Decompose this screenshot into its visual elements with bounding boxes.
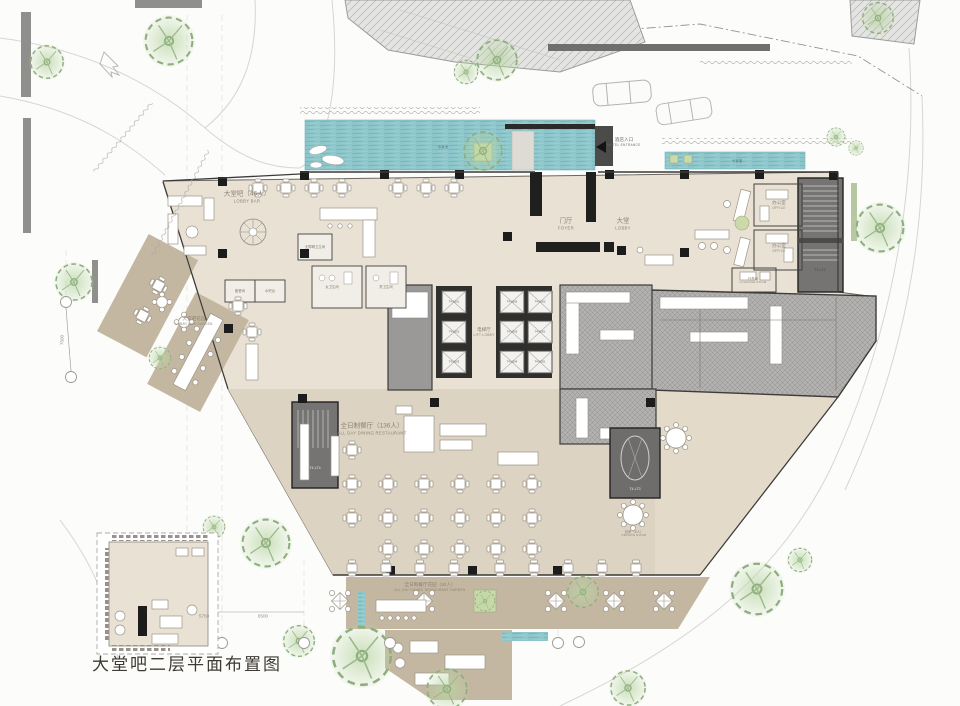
room-label-lobby: 大堂 LOBBY bbox=[615, 217, 630, 230]
lift-label-ld05: T4-LD05 bbox=[507, 330, 517, 333]
room-label-office-1: 办公室 OFFICE bbox=[772, 200, 786, 210]
deck-water-strip bbox=[358, 592, 366, 626]
site-label-hotel-entrance: 酒店入口 HOTEL ENTRANCE bbox=[607, 137, 640, 147]
lift-label-kd02: T4-KD02 bbox=[535, 300, 546, 303]
room-label-foyer: 门厅 FOYER bbox=[558, 217, 574, 230]
dimension-8500: 8500 bbox=[258, 614, 268, 619]
stair-label-t4-lt3: T4-LT3 bbox=[629, 487, 640, 491]
room-label-restaurant: 全日制餐厅（136人） ALL DAY DINING RESTAURANT bbox=[337, 422, 406, 435]
lift-label-kd01: T4-KD01 bbox=[535, 330, 546, 333]
drawing-title: 大堂吧二层平面布置图 bbox=[92, 650, 282, 675]
reflecting-pool bbox=[305, 120, 595, 170]
room-label-lift-lobby: 电梯厅 LIFT LOBBY bbox=[473, 327, 494, 337]
lift-label-ld01: T4-LD01 bbox=[449, 300, 459, 303]
site-label-water-wall: 水景墙 bbox=[732, 159, 742, 163]
lift-label-ld02: T4-LD02 bbox=[449, 330, 459, 333]
room-label-water-bar: 水吧台 bbox=[265, 289, 275, 293]
lift-label-ld04: T4-LD04 bbox=[507, 360, 517, 363]
inset-detail bbox=[97, 533, 218, 654]
stair-label-t4-lt2: T4-LT2 bbox=[814, 268, 825, 272]
room-label-lobby-bar: 大堂吧（46人） LOBBY BAR bbox=[224, 190, 270, 203]
room-label-lobby-bar-garden: 大堂吧花园 LOBBY BAR GARDEN bbox=[175, 316, 212, 326]
room-label-male-toilet: 男卫生间 bbox=[379, 285, 393, 289]
spiral-stair bbox=[240, 219, 266, 245]
room-label-office-2: 办公室 OFFICE bbox=[772, 243, 786, 253]
deck-water-strip2 bbox=[502, 632, 548, 641]
site-label-water-pool: 水景池 bbox=[438, 145, 448, 149]
plan-drawing bbox=[0, 0, 960, 706]
dimension-5750: 5750 bbox=[199, 614, 209, 619]
room-label-pantry: 备餐间 bbox=[235, 289, 245, 293]
car-icon bbox=[592, 80, 713, 126]
room-label-luggage: 行李间 LUGGAGE ROOM bbox=[740, 277, 767, 285]
stair-t4-lt2 bbox=[798, 178, 843, 292]
lift-label-ld03: T4-LD03 bbox=[449, 360, 459, 363]
room-label-female-toilet: 女卫生间 bbox=[325, 285, 339, 289]
room-label-restaurant-garden: 全日制餐厅花园（52人） ALL DAY DINING RESTAURANT G… bbox=[394, 582, 465, 592]
lift-label-kd01b: T4-KD01 bbox=[535, 360, 546, 363]
stair-label-t4-lt4: T4-LT4 bbox=[309, 466, 320, 470]
room-label-private-dining: 包房（6人） PRIVATE ROOM bbox=[622, 530, 647, 538]
dimension-7500: 7500 bbox=[60, 335, 65, 345]
room-label-acc-toilet: 无障碍卫生间 bbox=[305, 245, 325, 249]
floor-plan-canvas: 大堂吧（46人） LOBBY BAR 门厅 FOYER 大堂 LOBBY 电梯厅… bbox=[0, 0, 960, 706]
lift-label-ld06: T4-LD06 bbox=[507, 300, 517, 303]
